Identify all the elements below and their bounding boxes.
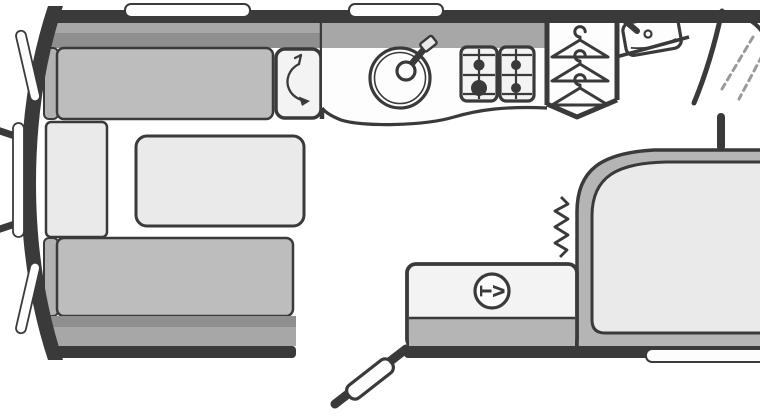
bottom-bench-cushion [57,238,293,316]
top-bench-backrest-edge [50,33,322,48]
top-window [349,4,443,17]
top-window [125,4,250,17]
tv-label-letter: V [490,284,509,297]
rear-window [646,349,760,362]
bottom-bench-backrest-edge [50,316,296,327]
front-window [13,123,24,237]
burner-icon [511,60,521,70]
front-chest [46,122,107,237]
bottom-bench-backrest [50,327,296,346]
burner-icon [474,60,485,71]
bedroom [555,117,760,349]
hob [461,47,534,101]
burner-icon [511,83,521,93]
curtain-divider-icon [555,197,568,257]
front-lounge [44,22,322,346]
tv-cabinet: T V [407,264,577,348]
bed-mattress [592,162,760,333]
burner-icon [471,80,487,96]
washroom [616,11,760,103]
floorplan-canvas: T V [0,0,760,415]
door-panel [344,356,396,402]
shower-spray-icon [722,37,760,99]
top-bench-cushion [57,48,273,119]
basin-plughole-icon [645,31,652,38]
swivel-locker [276,49,321,118]
caravan-floorplan: T V [0,0,760,415]
tv-cabinet-front [409,318,575,346]
lounge-table [136,136,304,226]
swivel-locker-box [276,49,321,118]
entrance-door [335,349,406,404]
wardrobe [547,12,618,117]
shower-door [694,11,722,103]
kitchen [322,23,547,125]
top-bench-backrest [50,23,322,33]
tap-base [397,62,415,80]
bottom-wall-left [50,346,296,358]
shower [694,11,760,103]
